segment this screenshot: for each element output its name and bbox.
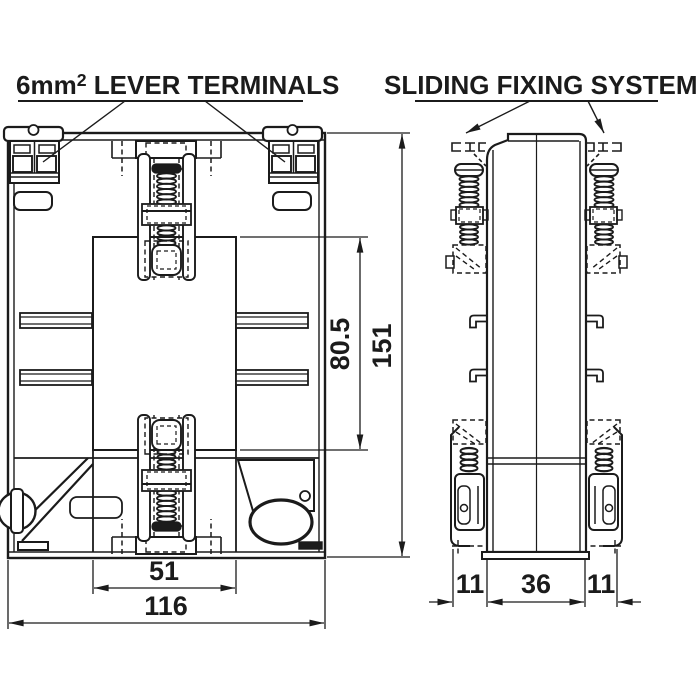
dim-overall-height-value: 151 xyxy=(367,323,397,368)
side-hook-left-upper xyxy=(470,316,488,328)
sliding-clip-right xyxy=(587,143,621,166)
technical-drawing-page: 6mm2 LEVER TERMINALS SLIDING FIXING SYST… xyxy=(0,0,700,700)
dim-inner-width: 51 xyxy=(93,556,236,594)
side-clamp-left xyxy=(451,420,487,557)
foot-left xyxy=(18,542,48,550)
side-clamp-right xyxy=(586,420,622,557)
screw-slot xyxy=(11,489,23,533)
leader-clip-left xyxy=(466,101,530,133)
side-hook-left-lower xyxy=(470,370,488,382)
side-hook-right-upper xyxy=(585,316,603,328)
dim-side-left-offset-value: 11 xyxy=(456,569,485,599)
dim-overall-width-value: 116 xyxy=(144,591,188,621)
side-body xyxy=(482,134,589,559)
dim-window-height-value: 80.5 xyxy=(325,318,355,371)
drawing-svg: 151 80.5 51 116 xyxy=(0,0,700,700)
side-screw-left xyxy=(446,164,488,273)
side-screw-right xyxy=(585,164,627,273)
side-view xyxy=(446,134,627,559)
leader-clip-right xyxy=(588,101,604,133)
dim-side-body-width-value: 36 xyxy=(521,569,551,599)
dim-side-right-offset-value: 11 xyxy=(587,569,616,599)
front-view xyxy=(0,125,325,558)
side-hook-right-lower xyxy=(585,370,603,382)
sliding-clip-left xyxy=(452,143,486,166)
foot-right xyxy=(299,542,322,549)
cable-opening xyxy=(250,500,312,544)
dim-inner-width-value: 51 xyxy=(149,556,179,586)
